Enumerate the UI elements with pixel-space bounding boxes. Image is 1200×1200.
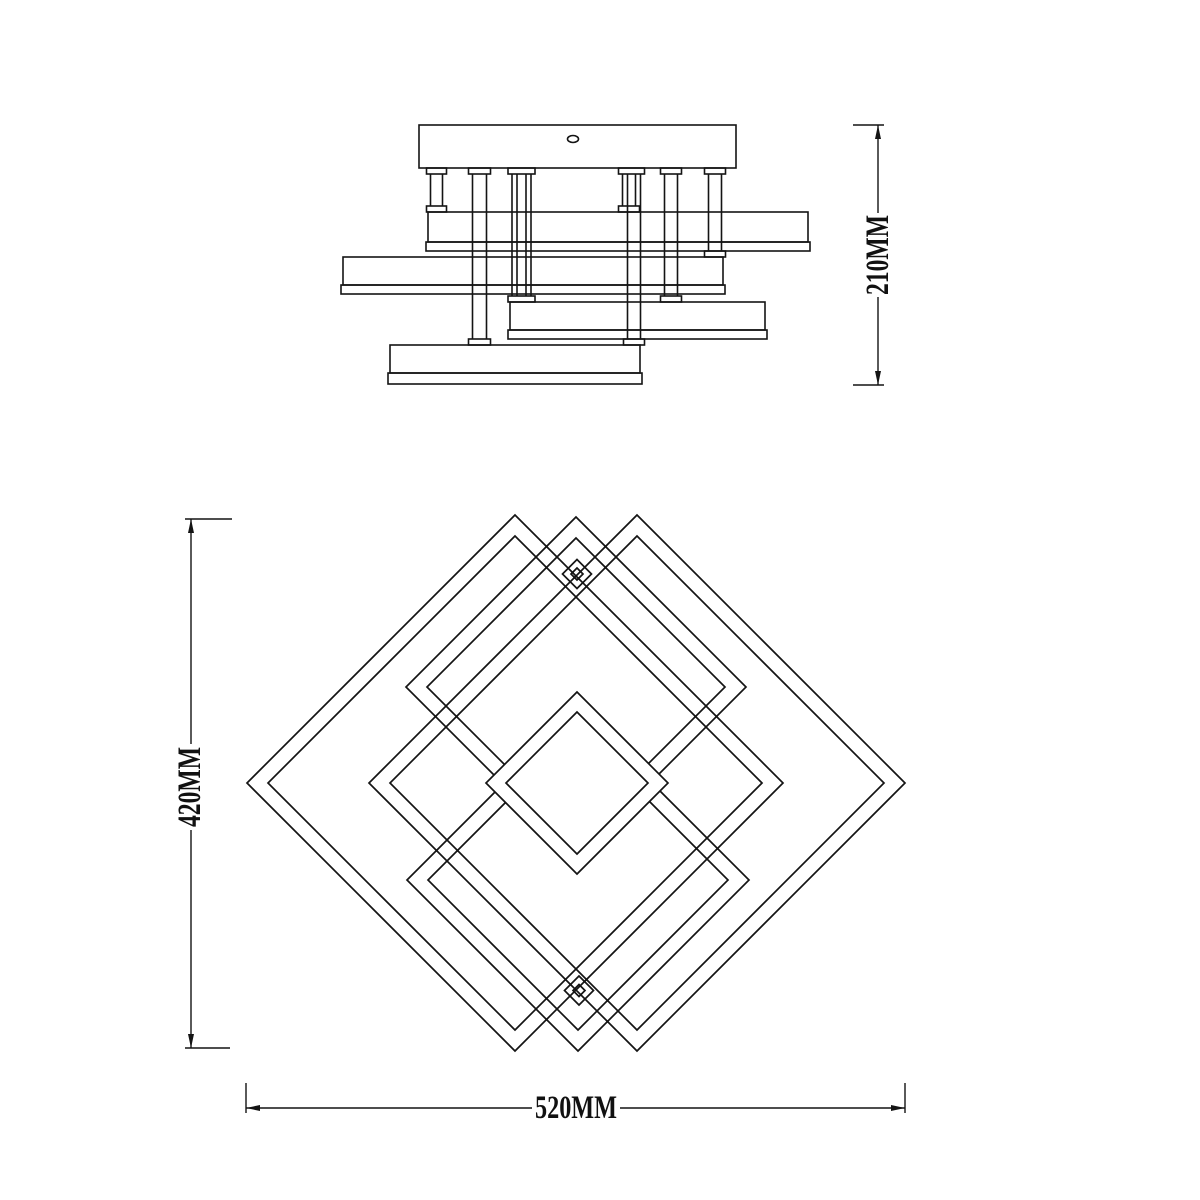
mounting-hole [568,136,579,143]
diamond-frame-center [486,692,668,874]
light-bar-3 [510,302,765,330]
light-bar-3-lip [508,330,767,339]
arrow-left-icon [246,1105,260,1111]
light-bar-1 [428,212,808,242]
light-bar-1-lip [426,242,810,251]
arrow-down-icon [875,371,881,385]
plan-view-drawing [247,515,905,1051]
light-bar-2-lip [341,285,725,294]
technical-drawing-canvas: 210MM 420MM 520MM [0,0,1200,1200]
diamond-connector-bottom [565,976,594,1005]
arrow-right-icon [891,1105,905,1111]
technical-drawing-page: 210MM 420MM 520MM [0,0,1200,1200]
light-bars [341,212,810,384]
arrow-up-icon [188,519,194,533]
dimension-plan-height: 420MM [172,519,232,1048]
light-bar-4 [390,345,640,373]
arrow-down-icon [188,1034,194,1048]
dimension-label-520mm: 520MM [535,1090,617,1126]
light-bar-4-lip [388,373,642,384]
light-bar-2 [343,257,723,285]
dimension-side-height: 210MM [853,125,896,385]
dimension-label-210mm: 210MM [860,215,896,295]
dimension-plan-width: 520MM [246,1083,905,1126]
canopy [419,125,736,168]
dimension-label-420mm: 420MM [172,747,208,827]
arrow-up-icon [875,125,881,139]
side-view-drawing [341,125,810,384]
